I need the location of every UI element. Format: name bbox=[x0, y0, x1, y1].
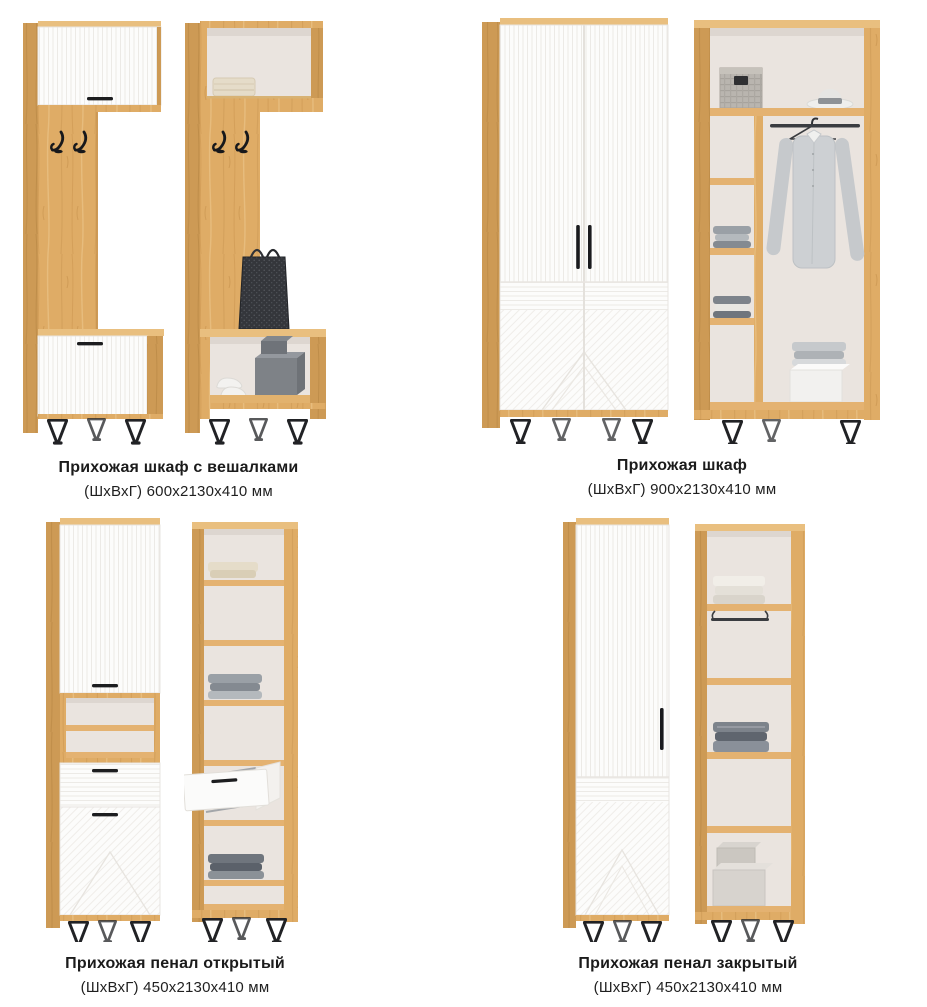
product-caption: Прихожая пенал закрытый (ШхВхГ) 450х2130… bbox=[563, 954, 813, 998]
catalog-page: Прихожая шкаф с вешалками (ШхВхГ) 600х21… bbox=[0, 0, 927, 1007]
shopper-bag bbox=[239, 250, 289, 329]
product-views bbox=[563, 512, 813, 942]
product-card-wardrobe-hooks: Прихожая шкаф с вешалками (ШхВхГ) 600х21… bbox=[21, 14, 336, 502]
product-image-open bbox=[695, 516, 813, 942]
product-card-pencil-open: Прихожая пенал открытый (ШхВхГ) 450х2130… bbox=[46, 512, 304, 998]
product-views bbox=[21, 14, 336, 446]
product-card-pencil-closed: Прихожая пенал закрытый (ШхВхГ) 450х2130… bbox=[563, 512, 813, 998]
drawer-handle bbox=[92, 769, 118, 772]
hairpin-legs bbox=[722, 419, 861, 444]
product-dimensions: (ШхВхГ) 450х2130х410 мм bbox=[563, 978, 813, 998]
folded-towel bbox=[208, 562, 258, 578]
product-image-closed bbox=[482, 12, 672, 444]
product-dimensions: (ШхВхГ) 450х2130х410 мм bbox=[46, 978, 304, 998]
folded-jeans bbox=[713, 722, 769, 752]
hairpin-legs bbox=[47, 418, 146, 443]
folded-towel bbox=[213, 78, 255, 96]
product-dimensions: (ШхВхГ) 900х2130х410 мм bbox=[482, 480, 882, 500]
pencil-open bbox=[695, 524, 805, 942]
product-image-closed bbox=[46, 512, 172, 942]
hairpin-legs bbox=[209, 418, 308, 443]
product-image-closed bbox=[21, 14, 169, 446]
pencil-closed bbox=[563, 518, 669, 942]
pencil-open bbox=[184, 522, 298, 942]
wardrobe-open bbox=[694, 20, 880, 444]
product-dimensions: (ШхВхГ) 600х2130х410 мм bbox=[21, 482, 336, 502]
product-caption: Прихожая шкаф (ШхВхГ) 900х2130х410 мм bbox=[482, 456, 882, 500]
product-caption: Прихожая шкаф с вешалками (ШхВхГ) 600х21… bbox=[21, 458, 336, 502]
product-image-open bbox=[694, 12, 880, 444]
product-caption: Прихожая пенал открытый (ШхВхГ) 450х2130… bbox=[46, 954, 304, 998]
hairpin-legs bbox=[68, 920, 151, 942]
product-image-closed bbox=[563, 512, 683, 942]
product-name: Прихожая шкаф с вешалками bbox=[21, 458, 336, 479]
product-card-wardrobe: Прихожая шкаф (ШхВхГ) 900х2130х410 мм bbox=[482, 12, 882, 500]
hairpin-legs bbox=[711, 919, 794, 942]
product-image-open bbox=[183, 14, 331, 446]
product-views bbox=[482, 12, 882, 444]
door-handle bbox=[92, 684, 118, 687]
product-views bbox=[46, 512, 304, 942]
hairpin-legs bbox=[510, 418, 653, 443]
pencil-closed bbox=[46, 518, 160, 942]
door-handle bbox=[660, 708, 664, 750]
product-name: Прихожая шкаф bbox=[482, 456, 882, 477]
hairpin-legs bbox=[202, 917, 287, 942]
product-name: Прихожая пенал закрытый bbox=[563, 954, 813, 975]
hairpin-legs bbox=[583, 920, 662, 942]
woven-basket bbox=[720, 68, 762, 108]
cabinet-closed bbox=[23, 21, 164, 443]
product-name: Прихожая пенал открытый bbox=[46, 954, 304, 975]
door-handle-bottom bbox=[92, 813, 118, 816]
towels-on-box bbox=[790, 342, 850, 402]
drawer-handle bbox=[77, 342, 103, 345]
product-image-open bbox=[184, 514, 304, 942]
wardrobe-closed bbox=[482, 18, 668, 443]
door-handle bbox=[87, 97, 113, 100]
cabinet-open bbox=[185, 21, 326, 443]
folded-towels bbox=[713, 576, 765, 604]
